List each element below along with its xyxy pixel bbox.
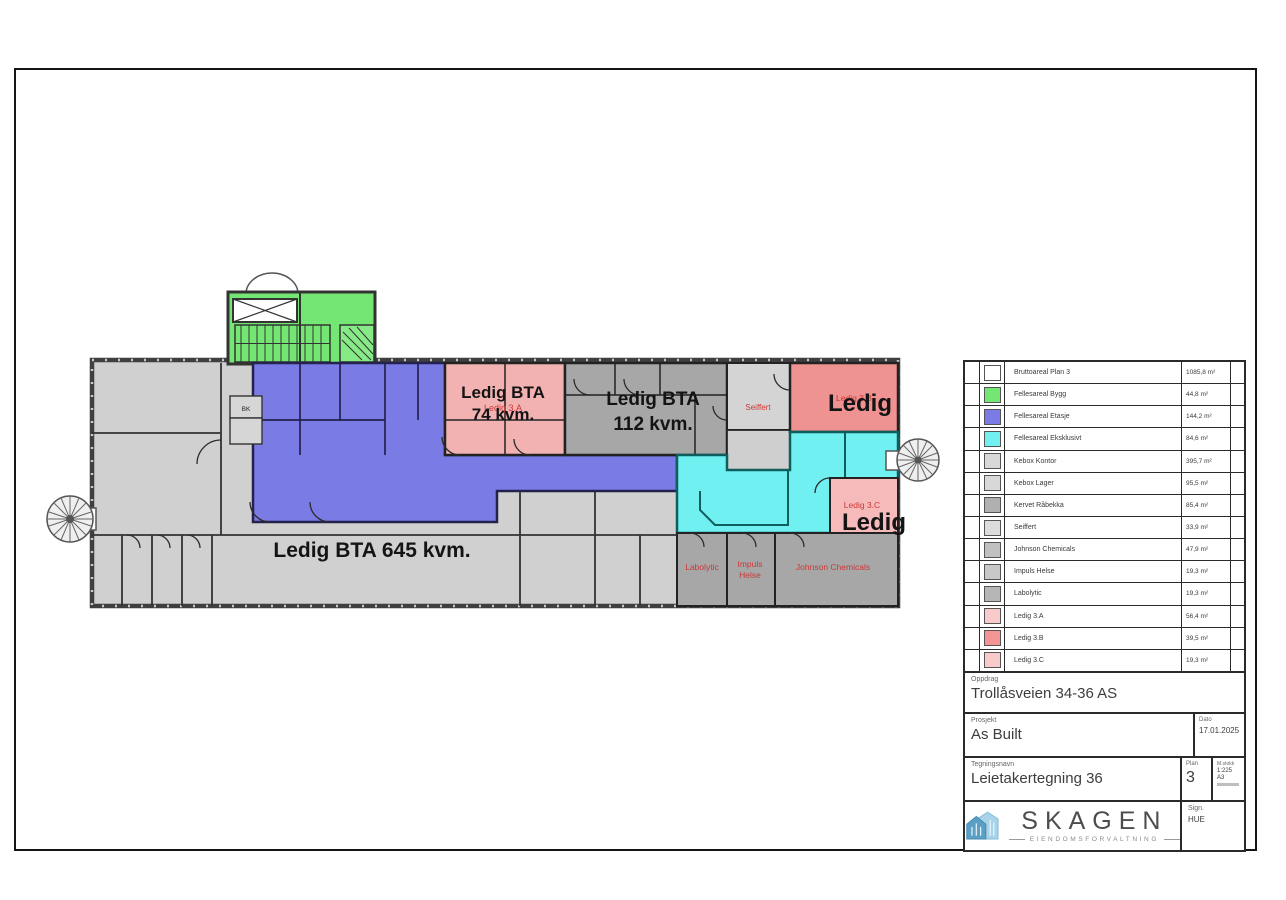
titleblock-oppdrag: Oppdrag Trollåsveien 34-36 AS (963, 671, 1246, 714)
label-ledig-74-line2: 74 kvm. (472, 405, 534, 424)
legend-value: 19,3 m² (1186, 590, 1208, 597)
legend-cell-tail (1231, 606, 1244, 627)
legend-value: 19,3 m² (1186, 568, 1208, 575)
label-ledig-112-line1: Ledig BTA (606, 389, 700, 410)
legend-swatch (984, 652, 1001, 668)
legend-value: 84,6 m² (1186, 435, 1208, 442)
legend-cell-tail (1231, 628, 1244, 649)
legend-value: 19,3 m² (1186, 657, 1208, 664)
paper-format: A3 (1217, 775, 1244, 781)
prosjekt-label: Prosjekt (971, 717, 1193, 724)
legend-row: Labolytic19,3 m² (965, 583, 1244, 605)
legend-value: 85,4 m² (1186, 502, 1208, 509)
titleblock-dato: Dato 17.01.2025 (1193, 712, 1246, 758)
malestokk-value: 1:225 (1217, 768, 1244, 774)
legend-cell-tail (1231, 561, 1244, 582)
legend-swatch (984, 453, 1001, 469)
legend-cell-ref (965, 628, 980, 649)
floor-plan: Ledig 3.A Ledig BTA 74 kvm. Ledig BTA 11… (30, 270, 950, 620)
prosjekt-value: As Built (971, 726, 1193, 743)
legend-label: Fellesareal Etasje (1014, 413, 1070, 420)
label-ledig-3c-big: Ledig (842, 509, 906, 536)
legend-label: Kebox Kontor (1014, 458, 1056, 465)
legend-cell-ref (965, 561, 980, 582)
legend-swatch (984, 630, 1001, 646)
legend-label: Fellesareal Eksklusivt (1014, 435, 1081, 442)
legend-row: Fellesareal Etasje144,2 m² (965, 406, 1244, 428)
legend-value: 39,5 m² (1186, 635, 1208, 642)
oppdrag-label: Oppdrag (971, 676, 1244, 683)
label-impuls-line2: Helse (739, 570, 761, 580)
spiral-stair-left (47, 496, 96, 542)
titleblock-malestokk: M.stokk 1:225 A3 (1211, 756, 1246, 802)
malestokk-label: M.stokk (1217, 761, 1244, 767)
legend-label: Bruttoareal Plan 3 (1014, 369, 1070, 376)
legend-value: 95,5 m² (1186, 480, 1208, 487)
legend-swatch (984, 608, 1001, 624)
legend-swatch (984, 431, 1001, 447)
legend-value: 1085,8 m² (1186, 369, 1215, 376)
legend-value: 44,8 m² (1186, 391, 1208, 398)
legend-row: Ledig 3.A56,4 m² (965, 606, 1244, 628)
legend-cell-tail (1231, 473, 1244, 494)
legend-row: Bruttoareal Plan 31085,8 m² (965, 362, 1244, 384)
legend-cell-tail (1231, 428, 1244, 449)
legend-cell-ref (965, 539, 980, 560)
legend-cell-ref (965, 362, 980, 383)
legend-table: Bruttoareal Plan 31085,8 m²Fellesareal B… (963, 360, 1246, 673)
legend-value: 33,9 m² (1186, 524, 1208, 531)
titleblock-prosjekt: Prosjekt As Built (963, 712, 1195, 758)
sign-label: Sign. (1188, 805, 1244, 812)
legend-swatch (984, 475, 1001, 491)
legend-cell-tail (1231, 539, 1244, 560)
oppdrag-value: Trollåsveien 34-36 AS (971, 685, 1244, 702)
legend-value: 144,2 m² (1186, 413, 1212, 420)
label-labolytic: Labolytic (685, 562, 719, 572)
legend-label: Kervet Råbekka (1014, 502, 1064, 509)
legend-row: Impuls Helse19,3 m² (965, 561, 1244, 583)
floor-plan-svg: Ledig 3.A Ledig BTA 74 kvm. Ledig BTA 11… (30, 270, 950, 620)
room-bk-2 (230, 418, 262, 444)
legend-cell-tail (1231, 650, 1244, 671)
legend-cell-tail (1231, 495, 1244, 516)
legend-swatch (984, 542, 1001, 558)
logo-subtitle: EIENDOMSFORVALTNING (1030, 836, 1159, 843)
label-ledig-3b-big: Ledig (828, 390, 892, 417)
legend-swatch (984, 387, 1001, 403)
legend-swatch (984, 520, 1001, 536)
label-ledig-645: Ledig BTA 645 kvm. (273, 539, 470, 562)
legend-cell-tail (1231, 384, 1244, 405)
label-impuls-line1: Impuls (737, 559, 762, 569)
plan-value: 3 (1186, 769, 1211, 787)
legend-cell-tail (1231, 583, 1244, 604)
legend-swatch (984, 497, 1001, 513)
skagen-logo-icon (965, 808, 1000, 844)
legend-row: Seiffert33,9 m² (965, 517, 1244, 539)
sign-value: HUE (1188, 815, 1244, 824)
plan-label: Plan (1186, 761, 1211, 767)
legend-cell-ref (965, 428, 980, 449)
legend-swatch (984, 365, 1001, 381)
titleblock-logo: SKAGEN EIENDOMSFORVALTNING (963, 800, 1182, 852)
legend-row: Fellesareal Bygg44,8 m² (965, 384, 1244, 406)
legend-swatch (984, 409, 1001, 425)
legend-cell-ref (965, 406, 980, 427)
legend-cell-ref (965, 583, 980, 604)
legend-cell-swatch (980, 451, 1005, 472)
legend-row: Fellesareal Eksklusivt84,6 m² (965, 428, 1244, 450)
area-fellesareal-bygg (228, 292, 375, 364)
legend-cell-swatch (980, 473, 1005, 494)
legend-label: Impuls Helse (1014, 568, 1054, 575)
dato-label: Dato (1199, 717, 1244, 723)
room-seiffert (727, 363, 790, 430)
label-ledig-112-line2: 112 kvm. (613, 414, 692, 435)
legend-swatch (984, 586, 1001, 602)
legend-row: Kervet Råbekka85,4 m² (965, 495, 1244, 517)
legend-cell-swatch (980, 384, 1005, 405)
label-bk: BK (242, 406, 251, 413)
legend-value: 395,7 m² (1186, 458, 1212, 465)
malestokk-note (1217, 783, 1239, 786)
legend-label: Ledig 3.C (1014, 657, 1044, 664)
legend-swatch (984, 564, 1001, 580)
legend-cell-swatch (980, 362, 1005, 383)
legend-cell-swatch (980, 406, 1005, 427)
legend-value: 56,4 m² (1186, 613, 1208, 620)
titleblock-plan: Plan 3 (1180, 756, 1213, 802)
label-ledig-74-line1: Ledig BTA (461, 383, 545, 402)
label-seiffert: Seiffert (745, 403, 771, 412)
legend-cell-ref (965, 606, 980, 627)
legend-cell-swatch (980, 583, 1005, 604)
legend-row: Kebox Kontor395,7 m² (965, 451, 1244, 473)
legend-label: Seiffert (1014, 524, 1036, 531)
tegningsnavn-label: Tegningsnavn (971, 761, 1180, 768)
legend-cell-swatch (980, 628, 1005, 649)
titleblock-tegningsnavn: Tegningsnavn Leietakertegning 36 (963, 756, 1182, 802)
tegningsnavn-value: Leietakertegning 36 (971, 770, 1180, 787)
legend-row: Johnson Chemicals47,9 m² (965, 539, 1244, 561)
legend-label: Labolytic (1014, 590, 1042, 597)
legend-row: Ledig 3.B39,5 m² (965, 628, 1244, 650)
legend-cell-swatch (980, 517, 1005, 538)
dato-value: 17.01.2025 (1199, 726, 1244, 735)
legend-row: Ledig 3.C19,3 m² (965, 650, 1244, 671)
legend-cell-swatch (980, 606, 1005, 627)
legend-cell-ref (965, 473, 980, 494)
legend-cell-swatch (980, 495, 1005, 516)
legend-label: Ledig 3.B (1014, 635, 1044, 642)
label-johnson: Johnson Chemicals (796, 562, 870, 572)
legend-cell-swatch (980, 428, 1005, 449)
legend-label: Fellesareal Bygg (1014, 391, 1066, 398)
legend-label: Kebox Lager (1014, 480, 1054, 487)
logo-name: SKAGEN (1021, 809, 1167, 834)
legend-label: Johnson Chemicals (1014, 546, 1075, 553)
legend-value: 47,9 m² (1186, 546, 1208, 553)
titleblock-sign: Sign. HUE (1180, 800, 1246, 852)
legend-cell-swatch (980, 561, 1005, 582)
legend-cell-tail (1231, 406, 1244, 427)
legend-cell-ref (965, 451, 980, 472)
legend-cell-ref (965, 517, 980, 538)
legend-row: Kebox Lager95,5 m² (965, 473, 1244, 495)
legend-cell-ref (965, 650, 980, 671)
room-gray-mid (727, 430, 790, 470)
legend-cell-tail (1231, 517, 1244, 538)
legend-cell-swatch (980, 650, 1005, 671)
logo-line-left (1009, 839, 1025, 840)
legend-cell-swatch (980, 539, 1005, 560)
legend-cell-tail (1231, 362, 1244, 383)
logo-line-right (1164, 839, 1180, 840)
legend-cell-tail (1231, 451, 1244, 472)
legend-label: Ledig 3.A (1014, 613, 1044, 620)
legend-cell-ref (965, 495, 980, 516)
legend-cell-ref (965, 384, 980, 405)
